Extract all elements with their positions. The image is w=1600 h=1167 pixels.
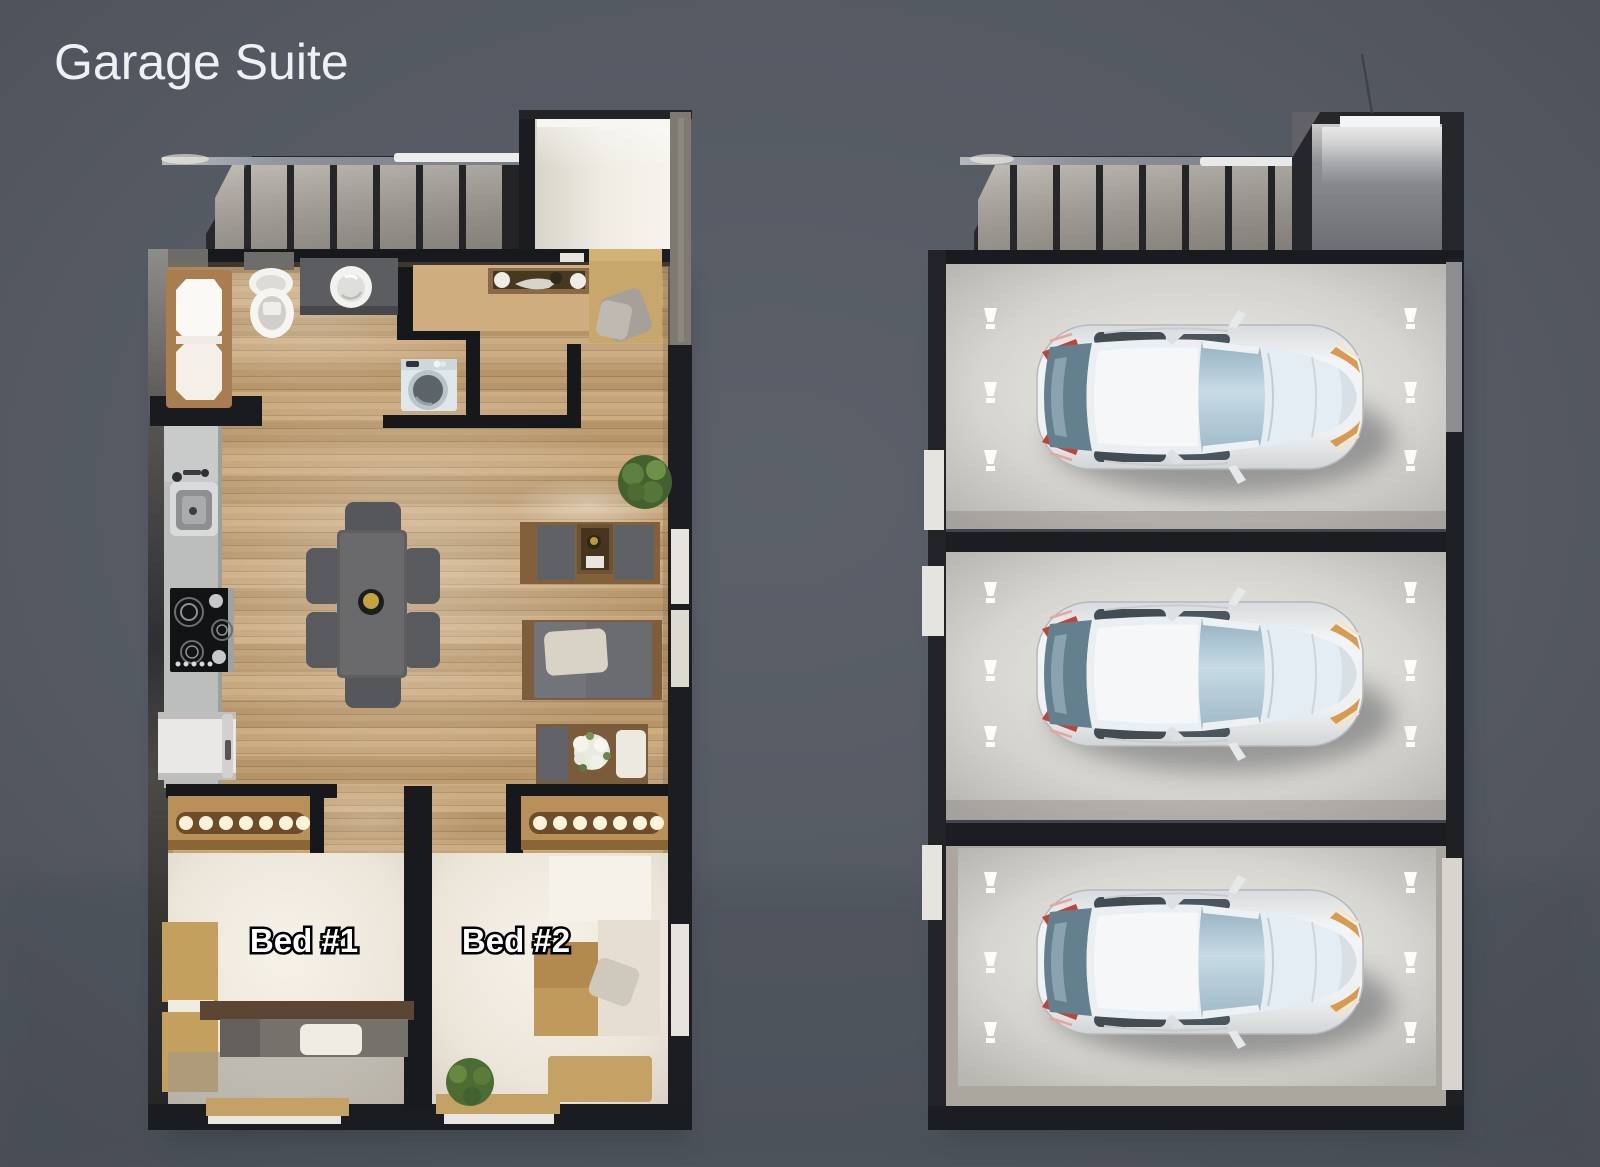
svg-text:Bed #2: Bed #2 [462,922,570,959]
svg-text:Garage Suite: Garage Suite [54,34,349,90]
svg-text:Bed #1: Bed #1 [250,922,358,959]
